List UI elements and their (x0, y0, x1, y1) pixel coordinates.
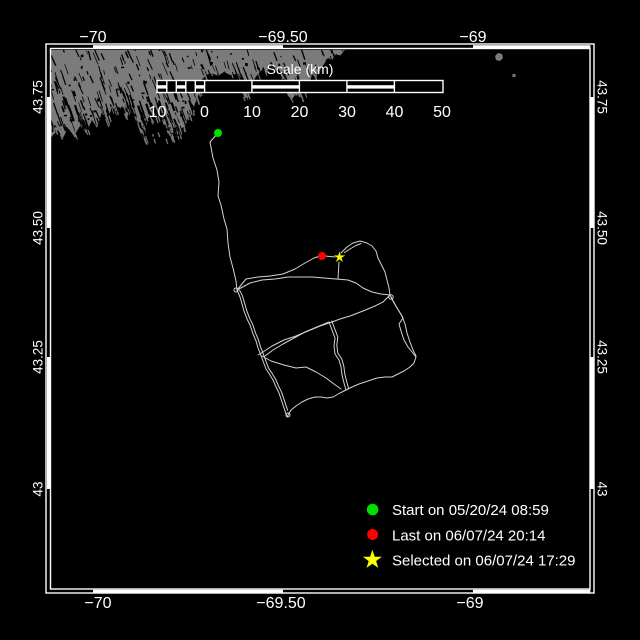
svg-text:20: 20 (291, 104, 309, 121)
svg-text:43.50: 43.50 (595, 211, 610, 245)
svg-text:10: 10 (149, 104, 167, 121)
svg-text:0: 0 (200, 104, 209, 121)
svg-text:43.75: 43.75 (31, 80, 46, 114)
svg-text:−69: −69 (459, 29, 486, 46)
svg-text:−69: −69 (456, 595, 483, 612)
svg-text:Selected on 06/07/24 17:29: Selected on 06/07/24 17:29 (392, 553, 576, 570)
svg-text:40: 40 (386, 104, 404, 121)
svg-text:−69.50: −69.50 (258, 29, 307, 46)
svg-text:43: 43 (595, 481, 610, 496)
svg-text:10: 10 (243, 104, 261, 121)
svg-text:Start on 05/20/24 08:59: Start on 05/20/24 08:59 (392, 502, 549, 519)
svg-text:43.50: 43.50 (31, 211, 46, 245)
svg-text:43.25: 43.25 (595, 340, 610, 374)
svg-text:Last on 06/07/24 20:14: Last on 06/07/24 20:14 (392, 528, 545, 545)
svg-text:−70: −70 (79, 29, 106, 46)
svg-text:43.75: 43.75 (595, 80, 610, 114)
svg-text:−70: −70 (84, 595, 111, 612)
svg-text:43.25: 43.25 (31, 340, 46, 374)
svg-text:50: 50 (433, 104, 451, 121)
svg-text:30: 30 (338, 104, 356, 121)
svg-text:−69.50: −69.50 (256, 595, 305, 612)
svg-text:Scale (km): Scale (km) (267, 61, 334, 77)
svg-text:43: 43 (31, 481, 46, 496)
